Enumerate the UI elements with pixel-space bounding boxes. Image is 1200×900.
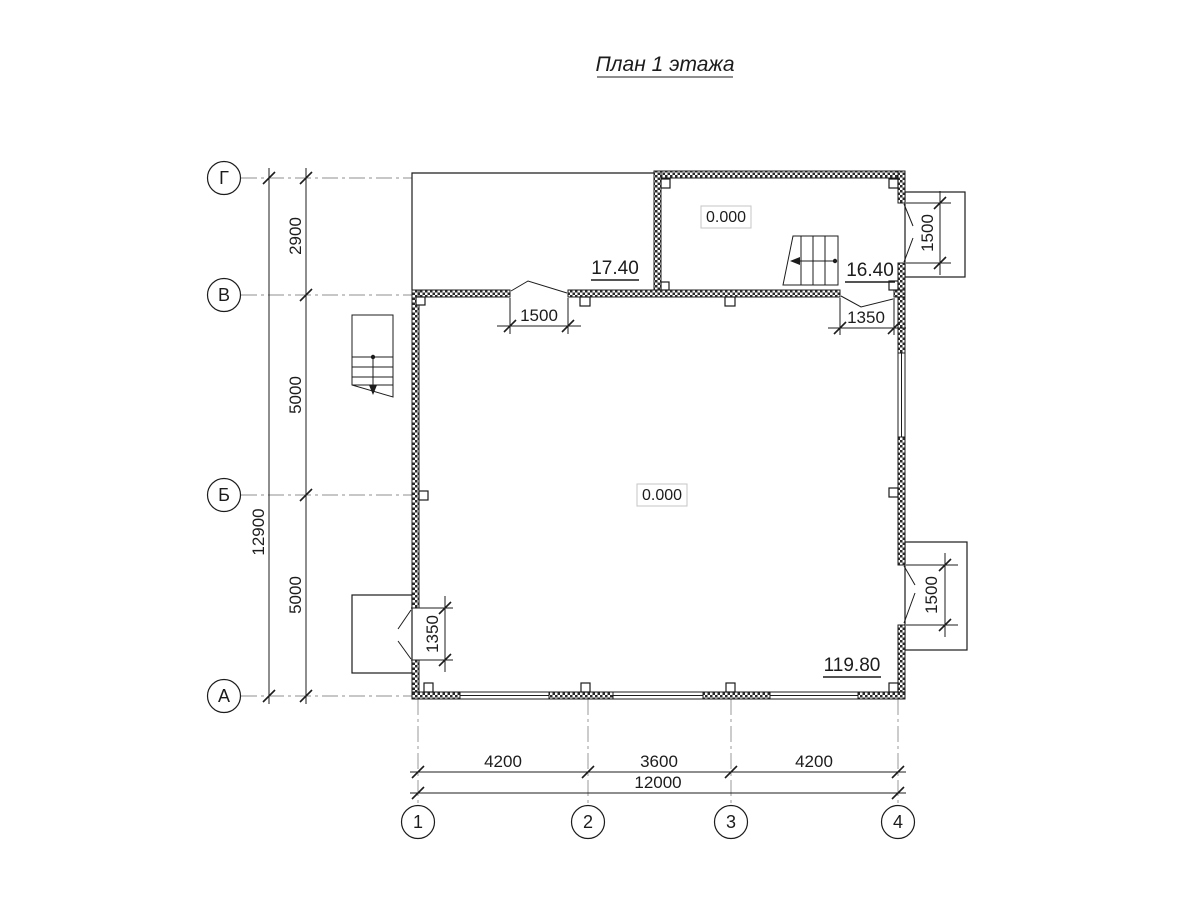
wall-right-d [898,437,905,565]
axis-bubble-row-v: В [208,279,241,312]
dim-entry-door-value: 1500 [520,306,558,325]
door-lower-balcony-break2 [904,593,915,623]
wall-right-e [898,625,905,699]
level-main-room: 0.000 [642,487,682,504]
floor-plan-canvas: План 1 этажа [0,0,1200,900]
wall-right-a [898,171,905,203]
dimensions-bottom: 4200 3600 4200 12000 [410,752,906,799]
axis-label-g: Г [219,168,229,188]
dim-left-seg2: 5000 [286,376,305,414]
left-porch-outline [352,595,412,673]
area-upper-room: 16.40 [846,260,894,281]
dimensions-left: 2900 5000 5000 12900 [249,168,312,704]
axis-label-b: Б [218,485,230,505]
axis-bubbles-rows: Г В Б А [208,162,241,713]
wall-row-v-mid [568,290,840,297]
axis-label-1: 1 [413,812,423,832]
axis-bubble-row-g: Г [208,162,241,195]
stair-left [352,315,393,397]
axis-label-3: 3 [726,812,736,832]
wall-bottom-pier4 [858,692,905,699]
axis-label-4: 4 [893,812,903,832]
dim-bottom-total: 12000 [634,773,681,792]
axis-bubble-col-4: 4 [882,806,915,839]
level-upper-room: 0.000 [706,209,746,226]
axis-bubble-col-2: 2 [572,806,605,839]
dim-left-door-value: 1350 [423,615,442,653]
door-left-break1 [398,610,411,629]
dim-entry-door: 1500 [497,298,581,334]
door-right-leaf [841,296,893,307]
dim-bottom-seg3: 4200 [795,752,833,771]
dim-left-total: 12900 [249,508,268,555]
axis-label-2: 2 [583,812,593,832]
axis-bubbles-cols: 1 2 3 4 [402,806,915,839]
area-terrace: 17.40 [591,258,639,279]
wall-row-v-pier [894,290,905,297]
dim-upper-balcony-value: 1500 [918,214,937,252]
axis-bubble-col-1: 1 [402,806,435,839]
dim-bottom-seg2: 3600 [640,752,678,771]
page-title: План 1 этажа [595,53,734,76]
axis-bubble-row-b: Б [208,479,241,512]
wall-divider [654,171,661,297]
axis-label-a: А [218,686,230,706]
door-entry-leaf [511,281,567,293]
wall-row-v-left [412,290,510,297]
windows [460,353,905,699]
dim-bottom-seg1: 4200 [484,752,522,771]
dim-right-door: 1350 [828,298,906,335]
dim-upper-balcony: 1500 [906,191,951,275]
dim-left-seg3: 5000 [286,576,305,614]
wall-top [654,171,905,178]
stair-upper-arrow-head [790,257,800,265]
wall-right-c [898,297,905,353]
axis-label-v: В [218,285,230,305]
area-main-room: 119.80 [824,655,881,676]
wall-bottom-pier3 [703,692,770,699]
wall-left-upper [412,290,419,608]
axis-bubble-row-a: А [208,680,241,713]
walls [412,171,905,699]
axis-grid-lines [241,178,898,805]
wall-bottom-pier1 [412,692,460,699]
wall-bottom-pier2 [549,692,613,699]
floor-plan-page: План 1 этажа [0,0,1200,900]
door-left-break2 [398,641,411,659]
dim-right-door-value: 1350 [847,308,885,327]
dim-lower-balcony-value: 1500 [922,576,941,614]
dim-left-seg1: 2900 [286,217,305,255]
drawing-title: План 1 этажа [595,53,734,77]
door-lower-balcony-break1 [904,566,915,585]
stair-upper-right [783,236,838,285]
axis-bubble-col-3: 3 [715,806,748,839]
